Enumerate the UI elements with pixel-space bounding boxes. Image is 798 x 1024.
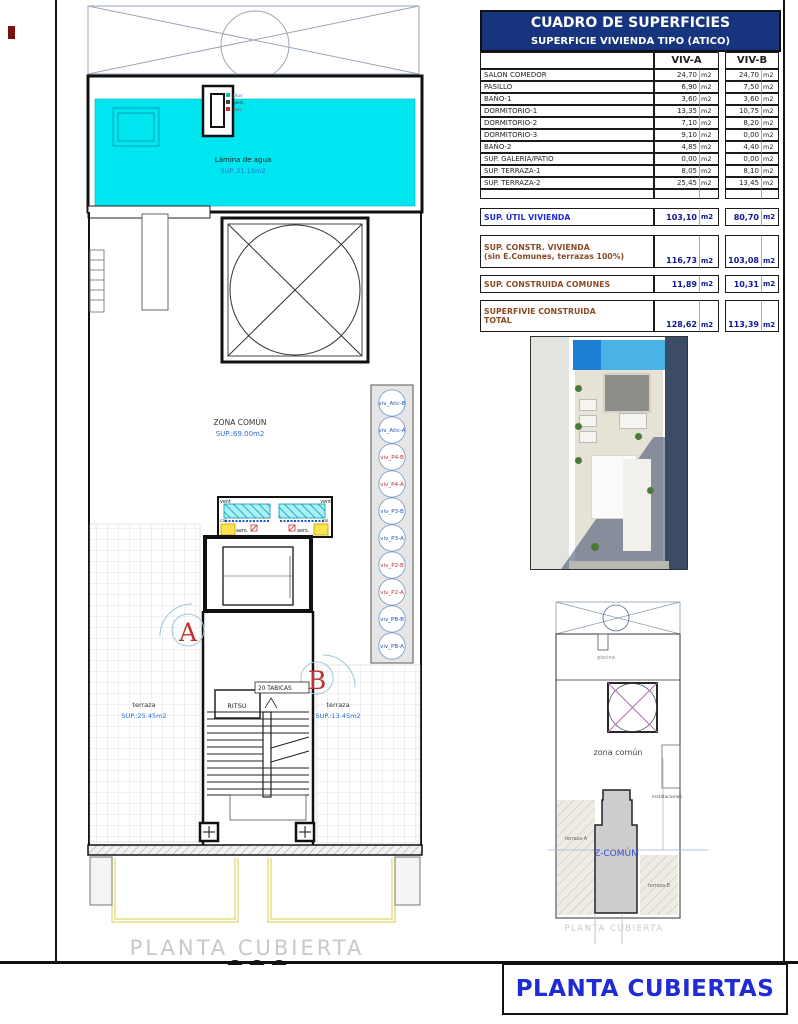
terrace-left-tiles [90, 524, 200, 842]
table-row: BAÑO-13,60m23,60m2 [480, 93, 781, 105]
riser-label: viv_Atic-B [378, 401, 405, 407]
terraza-left-label: terraza [132, 701, 155, 709]
vent-right-label: vent [320, 499, 331, 505]
table-subtitle: SUPERFICIE VIVIENDA TIPO (ATICO) [480, 34, 781, 52]
table-row: SALON COMEDOR24,70m224,70m2 [480, 69, 781, 81]
table-row: DORMITORIO-27,10m28,20m2 [480, 117, 781, 129]
mini-roof-plan: piscina zona común terraza-A terraza-B Z… [548, 598, 708, 946]
render-plant [575, 423, 582, 430]
ritsu-label: RITSU [227, 702, 247, 710]
render-base [569, 561, 669, 569]
zona-comun-label: ZONA COMÚN [214, 418, 267, 427]
shaft-label-san: san. [233, 108, 242, 113]
mini-terraza-a [557, 800, 595, 915]
title-block: PLANTA CUBIERTAS [502, 963, 788, 1015]
summary-util: SUP. ÚTIL VIVIENDA 103,10m2 80,70m2 [480, 208, 781, 226]
cal-left-label: cal. [220, 518, 228, 524]
mini-zcomun-label: Z-COMÚN [594, 847, 638, 859]
riser-label: viv_P3-B [380, 509, 404, 515]
render-volume [623, 459, 651, 551]
cal-right-label: cal. [322, 518, 330, 524]
pool-area-label: SUP. 21.15m2 [221, 167, 266, 175]
riser-label: viv_P2-A [380, 590, 404, 596]
table-row: DORMITORIO-39,10m20,00m2 [480, 129, 781, 141]
margin-mark [8, 26, 15, 39]
mini-void [556, 602, 680, 634]
sheet-title: PLANTA CUBIERTAS [516, 976, 775, 1002]
plan-caption: PLANTA CUBIERTA [130, 936, 365, 960]
aero-right-label: aero. [297, 528, 309, 534]
render-street [531, 337, 569, 569]
side-tabs [90, 857, 420, 905]
duct-box [142, 214, 168, 310]
render-plant [591, 543, 599, 551]
mini-caption: PLANTA CUBIERTA [564, 924, 663, 934]
render-plant [575, 385, 582, 392]
clipped-level-text [227, 960, 287, 965]
render-3d-thumbnail [530, 336, 688, 570]
terraza-right-label: terraza [326, 701, 349, 709]
table-row: BAÑO-24,85m24,40m2 [480, 141, 781, 153]
zona-comun-area: SUP.:69.00m2 [216, 430, 265, 438]
roof-ladder [90, 250, 104, 312]
render-plant [647, 487, 654, 494]
elevator-shaft [205, 537, 311, 611]
render-plant [635, 433, 642, 440]
summary-comunes: SUP. CONSTRUIDA COMUNES 11,89m2 10,31m2 [480, 275, 781, 293]
page-border-left [55, 0, 57, 963]
render-lounger [619, 413, 647, 429]
table-row: SUP. GALERIA/PATIO0,00m20,00m2 [480, 153, 781, 165]
staircase [207, 682, 309, 820]
render-side-shadow [665, 337, 687, 569]
main-roof-plan: pluv vent. san. Lámina de agua SUP. 21.1… [85, 0, 425, 965]
riser-label: viv_P3-A [380, 536, 404, 542]
render-skylight [603, 373, 651, 413]
section-letter-a: A [178, 618, 198, 647]
pool-label: Lámina de agua [215, 156, 271, 164]
table-rows: SALON COMEDOR24,70m224,70m2PASILLO6,90m2… [480, 69, 781, 189]
surface-table: CUADRO DE SUPERFICIES SUPERFICIE VIVIEND… [480, 10, 781, 332]
skylight [222, 218, 368, 362]
render-lounger [579, 399, 597, 411]
aero-left-label: aero. [236, 528, 248, 534]
render-lounger [579, 431, 597, 443]
mini-pool-shaft [598, 634, 608, 650]
tabicas-label: 20 TABICAS [258, 686, 292, 692]
columns [200, 823, 314, 841]
table-row: PASILLO6,90m27,50m2 [480, 81, 781, 93]
table-row: SUP. TERRAZA-225,45m213,45m2 [480, 177, 781, 189]
terraza-right-area: SUP.:13.45m2 [315, 712, 360, 720]
pool-water [95, 99, 415, 206]
table-row: DORMITORIO-113,35m210,75m2 [480, 105, 781, 117]
table-title: CUADRO DE SUPERFICIES [480, 10, 781, 34]
mini-instalaciones-label: instalaciones [652, 794, 683, 800]
riser-label: viv_P4-A [380, 482, 404, 488]
pool-block: pluv vent. san. Lámina de agua SUP. 21.1… [88, 76, 422, 218]
shaft-label-pluv: pluv [233, 93, 243, 99]
riser-label: viv_P2-B [380, 563, 404, 569]
terraza-left-area: SUP.:25.45m2 [121, 712, 166, 720]
empty-row [480, 189, 781, 199]
mini-piscina-label: piscina [597, 655, 615, 661]
render-pool-deep [573, 340, 601, 370]
balconies [112, 858, 395, 922]
facade-wall [88, 845, 422, 855]
shaft-label-vent: vent. [233, 100, 244, 106]
terrace-right-tiles [317, 665, 420, 843]
page-border-right [783, 0, 785, 963]
riser-label: viv_PB-A [380, 644, 404, 650]
summary-total: SUPERFIVIE CONSTRUIDATOTAL 128,62m2 113,… [480, 300, 781, 332]
vent-left-label: vent [220, 499, 231, 505]
mini-zona-comun-label: zona común [594, 748, 643, 757]
patio-void [88, 6, 419, 79]
col-header-empty [480, 52, 654, 69]
render-plant [575, 457, 582, 464]
riser-label: viv_P4-B [380, 455, 404, 461]
riser-label: viv_Atic-A [378, 428, 405, 434]
mini-notch [662, 745, 680, 788]
section-letter-b: B [308, 666, 326, 695]
col-header-viv-a: VIV-A [654, 52, 719, 69]
riser-label: viv_PB-B [380, 617, 404, 623]
table-row: SUP. TERRAZA-18,05m28,10m2 [480, 165, 781, 177]
mini-terraza-b-label: terraza-B [648, 883, 670, 889]
stair-walls [203, 611, 313, 845]
col-header-viv-b: VIV-B [725, 52, 779, 69]
summary-constr: SUP. CONSTR. VIVIENDA(sin E.Comunes, ter… [480, 235, 781, 268]
mini-terraza-a-label: terraza-A [565, 836, 588, 842]
mini-skylight [608, 683, 657, 732]
